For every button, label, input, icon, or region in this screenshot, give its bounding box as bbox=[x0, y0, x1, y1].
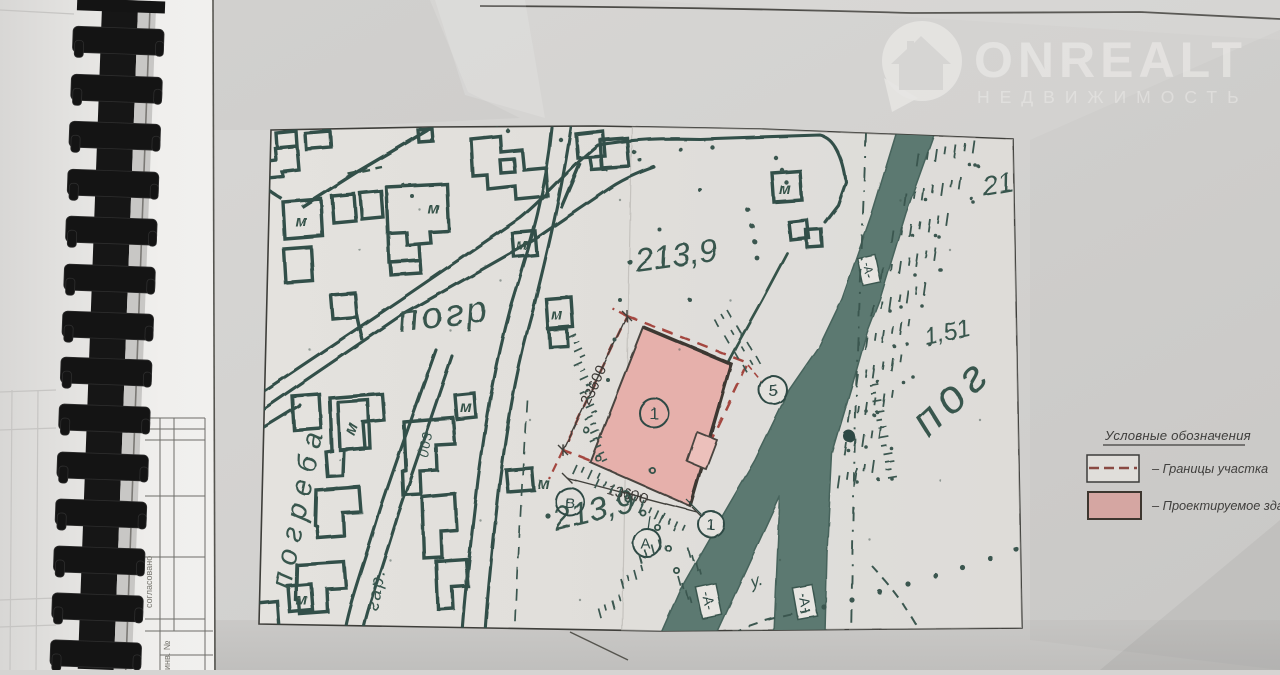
svg-text:НЕДВИЖИМОСТЬ: НЕДВИЖИМОСТЬ bbox=[977, 87, 1249, 107]
svg-text:м: м bbox=[551, 307, 563, 324]
svg-text:инв. №: инв. № bbox=[162, 640, 172, 670]
svg-text:м: м bbox=[460, 399, 472, 416]
svg-text:5: 5 bbox=[768, 381, 777, 400]
svg-text:21: 21 bbox=[979, 166, 1016, 202]
svg-text:м: м bbox=[428, 201, 440, 218]
svg-text:-А-: -А- bbox=[796, 591, 815, 612]
svg-text:м: м bbox=[296, 592, 308, 609]
svg-text:– Границы участка: – Границы участка bbox=[1151, 461, 1268, 476]
svg-text:1: 1 bbox=[707, 517, 716, 534]
svg-text:ONREALT: ONREALT bbox=[974, 32, 1247, 88]
svg-text:согласовано: согласовано bbox=[144, 556, 154, 608]
svg-text:м: м bbox=[516, 237, 528, 254]
svg-text:– Проектируемое здание: – Проектируемое здание bbox=[1151, 498, 1280, 513]
svg-text:В: В bbox=[565, 495, 575, 512]
svg-text:Условные обозначения: Условные обозначения bbox=[1104, 428, 1251, 443]
svg-text:м: м bbox=[295, 213, 307, 230]
svg-text:1: 1 bbox=[649, 404, 658, 423]
svg-text:А: А bbox=[641, 536, 651, 553]
